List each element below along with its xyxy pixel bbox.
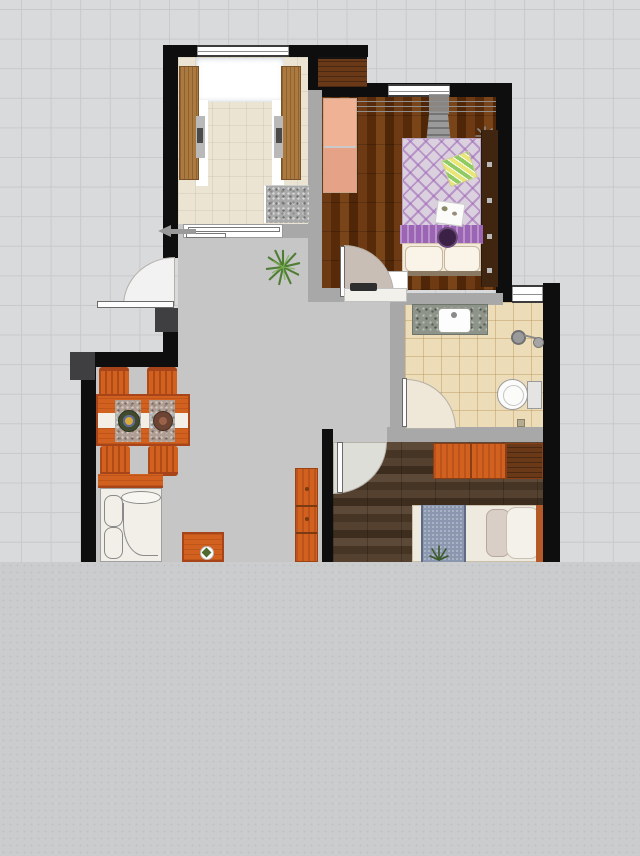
- tv-cabinet[interactable]: [295, 468, 318, 562]
- pink-wardrobe[interactable]: [323, 98, 357, 193]
- sofa-seat-curve: [123, 503, 158, 556]
- desk-monitor-right: [276, 128, 282, 143]
- plate-left: [118, 410, 140, 432]
- sliding-panel-top: [188, 227, 280, 232]
- wall-bedroom2-left: [322, 429, 333, 562]
- bed-headboard: [536, 505, 543, 562]
- pillow: [506, 507, 540, 559]
- arrow-shaft: [170, 229, 196, 234]
- letter-mark: [452, 211, 458, 216]
- shower-valve: [533, 337, 544, 348]
- round-cushion: [437, 227, 458, 248]
- study-sliding-window[interactable]: [183, 224, 283, 238]
- bedside-shelf[interactable]: [481, 130, 498, 287]
- desk-cabinet-right[interactable]: [281, 66, 301, 180]
- coffee-table[interactable]: [182, 532, 224, 562]
- wall-left-exterior: [81, 367, 96, 562]
- tv-sketch[interactable]: [350, 283, 377, 291]
- shelf-item: [487, 234, 492, 239]
- dining-chair[interactable]: [100, 446, 130, 476]
- balcony-direction-arrow: [158, 225, 196, 238]
- wardrobe-lower-panel: [324, 148, 356, 192]
- toilet-bowl[interactable]: [497, 379, 528, 410]
- toilet-tank: [527, 381, 542, 409]
- shelf-item: [487, 268, 492, 273]
- cabinet-knob: [305, 487, 309, 491]
- bathroom-window[interactable]: [512, 285, 543, 303]
- floor-drain-icon: [517, 419, 525, 427]
- wardrobe-divider: [470, 444, 472, 478]
- sofa[interactable]: [100, 488, 162, 562]
- wall-study-right-gray: [308, 90, 322, 302]
- dining-table[interactable]: [96, 394, 190, 446]
- letter-mark: [441, 206, 448, 212]
- shelf-item: [487, 198, 492, 203]
- bed-pillow-area: [402, 243, 481, 273]
- wall-bathroom-bottom: [387, 427, 543, 442]
- floorplan-canvas: [0, 0, 640, 856]
- desk-monitor-left: [197, 128, 203, 143]
- food-icon: [123, 415, 135, 427]
- shower-head-icon[interactable]: [511, 330, 526, 345]
- bottom-gray-panel: [0, 562, 640, 856]
- wardrobe-dark-section: [507, 444, 542, 478]
- faucet-icon: [451, 312, 457, 318]
- pillow: [405, 246, 443, 272]
- bed-plant-icon: [428, 540, 450, 562]
- plate-right: [153, 411, 173, 431]
- food-icon: [159, 417, 167, 425]
- hall-floor-right: [322, 302, 390, 442]
- sofa-cushion: [104, 495, 123, 527]
- orange-wardrobe[interactable]: [433, 443, 543, 479]
- bed-frame-edge: [402, 271, 481, 276]
- wall-bedroom1-right: [496, 83, 512, 302]
- sofa-back-shelf[interactable]: [98, 474, 163, 488]
- wall-study-corner-gray: [283, 224, 322, 238]
- sofa-cushion: [104, 527, 123, 559]
- study-counter-top: [196, 58, 284, 102]
- bathroom-door[interactable]: [402, 378, 407, 427]
- entry-door-swing: [123, 257, 175, 306]
- dining-chair[interactable]: [148, 446, 178, 476]
- cabinet-divider: [296, 505, 317, 507]
- wall-horizontal-left: [95, 352, 178, 367]
- wall-block-corner: [70, 352, 95, 380]
- cabinet-divider: [296, 532, 317, 534]
- vanity-sink: [438, 308, 471, 333]
- toilet-seat-line: [503, 385, 524, 406]
- entry-door[interactable]: [97, 301, 174, 308]
- washing-machine[interactable]: [264, 185, 309, 223]
- second-bedroom-door[interactable]: [337, 442, 343, 493]
- shelf-item: [487, 162, 492, 167]
- wall-right-exterior: [543, 283, 560, 562]
- niche-cabinet[interactable]: [318, 57, 367, 87]
- study-window[interactable]: [197, 45, 289, 57]
- hanging-garment-top: [429, 94, 449, 114]
- pillow: [444, 246, 480, 272]
- wall-block-entry: [155, 308, 178, 332]
- cabinet-knob: [305, 517, 309, 521]
- potted-plant-icon[interactable]: [264, 247, 302, 287]
- letter-on-bed: [435, 200, 466, 227]
